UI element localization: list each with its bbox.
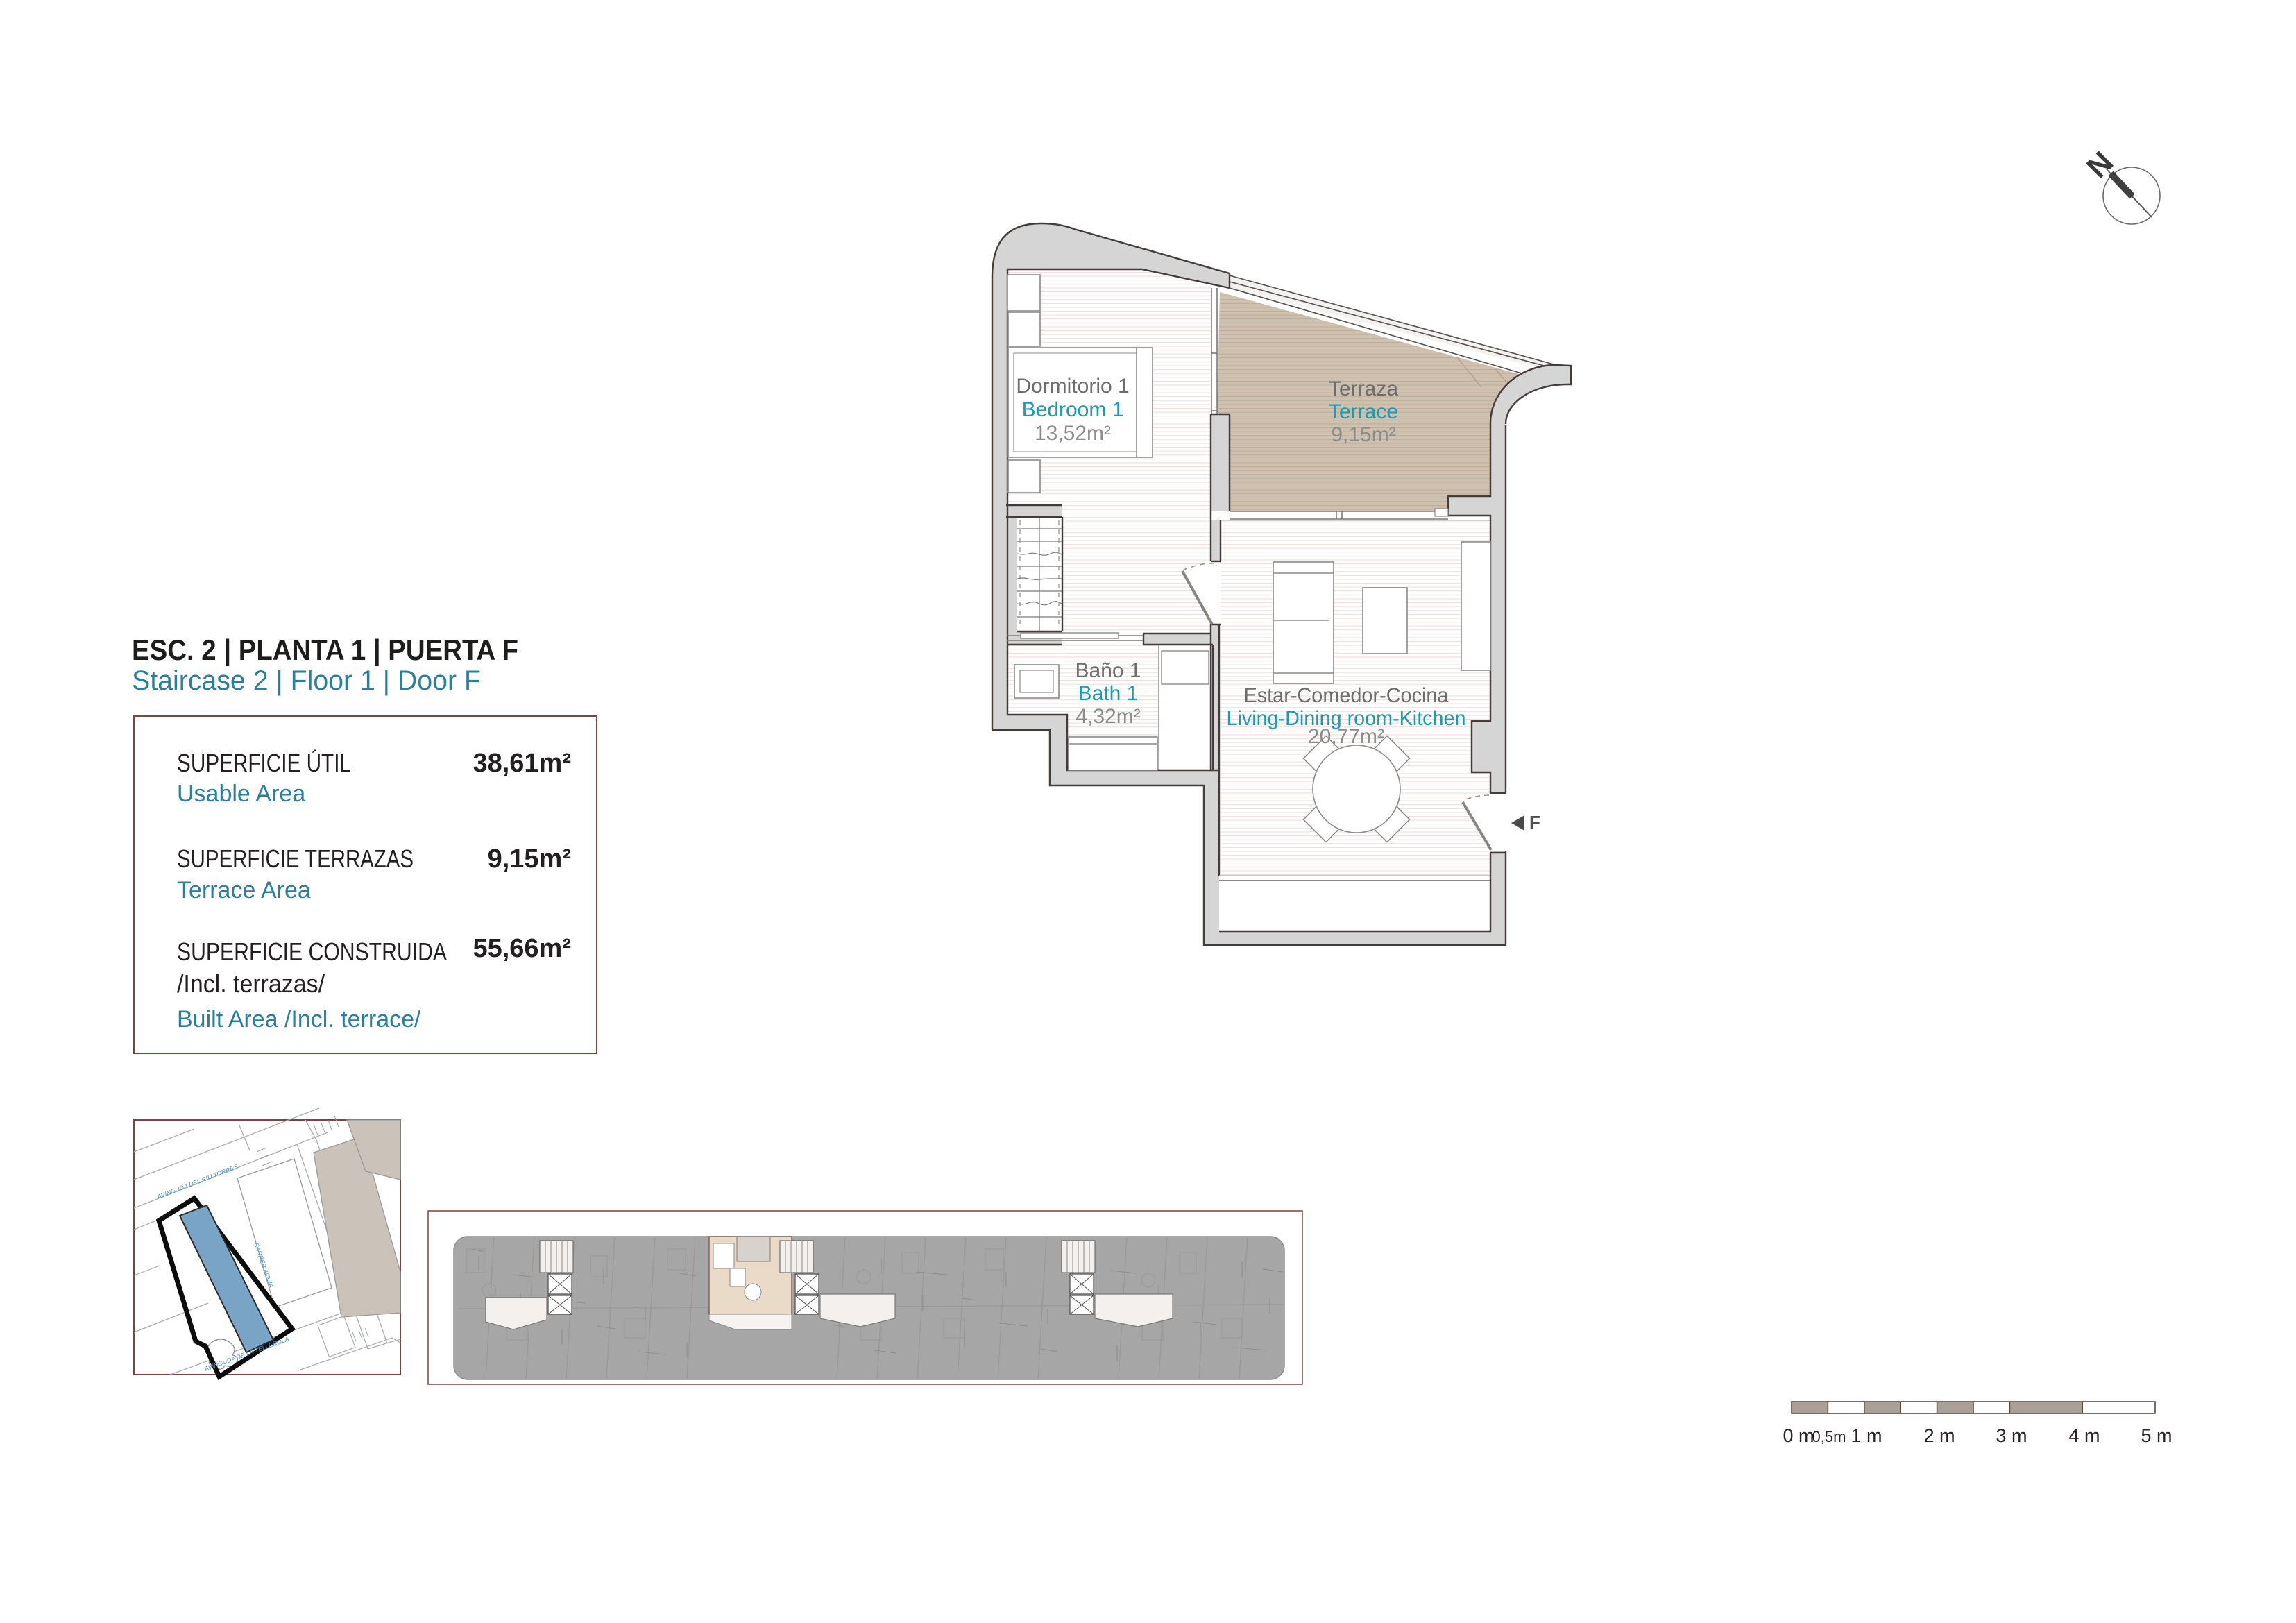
svg-text:0,5m: 0,5m [1812, 1428, 1846, 1445]
svg-text:Terrace Area: Terrace Area [177, 877, 311, 903]
svg-text:13,52m²: 13,52m² [1035, 422, 1111, 445]
svg-text:4,32m²: 4,32m² [1075, 705, 1140, 728]
svg-text:Bedroom 1: Bedroom 1 [1022, 398, 1124, 421]
svg-text:Usable Area: Usable Area [177, 781, 305, 807]
svg-text:3 m: 3 m [1996, 1425, 2027, 1446]
svg-text:Terraza: Terraza [1329, 377, 1398, 400]
svg-text:38,61m²: 38,61m² [473, 749, 571, 778]
svg-text:ESC. 2 | PLANTA 1 | PUERTA F: ESC. 2 | PLANTA 1 | PUERTA F [132, 634, 518, 667]
svg-text:/Incl. terrazas/: /Incl. terrazas/ [177, 969, 325, 998]
svg-text:Staircase 2 | Floor 1 | Door F: Staircase 2 | Floor 1 | Door F [132, 665, 481, 696]
svg-text:Built Area /Incl. terrace/: Built Area /Incl. terrace/ [177, 1006, 421, 1033]
svg-text:Estar-Comedor-Cocina: Estar-Comedor-Cocina [1244, 684, 1449, 707]
svg-text:0 m: 0 m [1783, 1425, 1814, 1446]
svg-text:4 m: 4 m [2068, 1425, 2100, 1446]
svg-text:20,77m²: 20,77m² [1308, 725, 1384, 748]
svg-text:SUPERFICIE ÚTIL: SUPERFICIE ÚTIL [177, 749, 351, 777]
svg-text:9,15m²: 9,15m² [1331, 423, 1395, 446]
svg-text:5 m: 5 m [2141, 1425, 2172, 1446]
svg-text:Bath 1: Bath 1 [1078, 682, 1139, 705]
svg-text:55,66m²: 55,66m² [473, 934, 571, 963]
svg-text:SUPERFICIE TERRAZAS: SUPERFICIE TERRAZAS [177, 844, 414, 873]
svg-text:Dormitorio 1: Dormitorio 1 [1016, 375, 1129, 398]
svg-text:1 m: 1 m [1851, 1425, 1882, 1446]
svg-text:Terrace: Terrace [1329, 400, 1398, 423]
svg-text:F: F [1529, 812, 1540, 833]
svg-text:9,15m²: 9,15m² [488, 844, 571, 874]
svg-text:2 m: 2 m [1923, 1425, 1955, 1446]
svg-text:Baño 1: Baño 1 [1075, 659, 1141, 682]
svg-text:SUPERFICIE CONSTRUIDA: SUPERFICIE CONSTRUIDA [177, 937, 447, 966]
